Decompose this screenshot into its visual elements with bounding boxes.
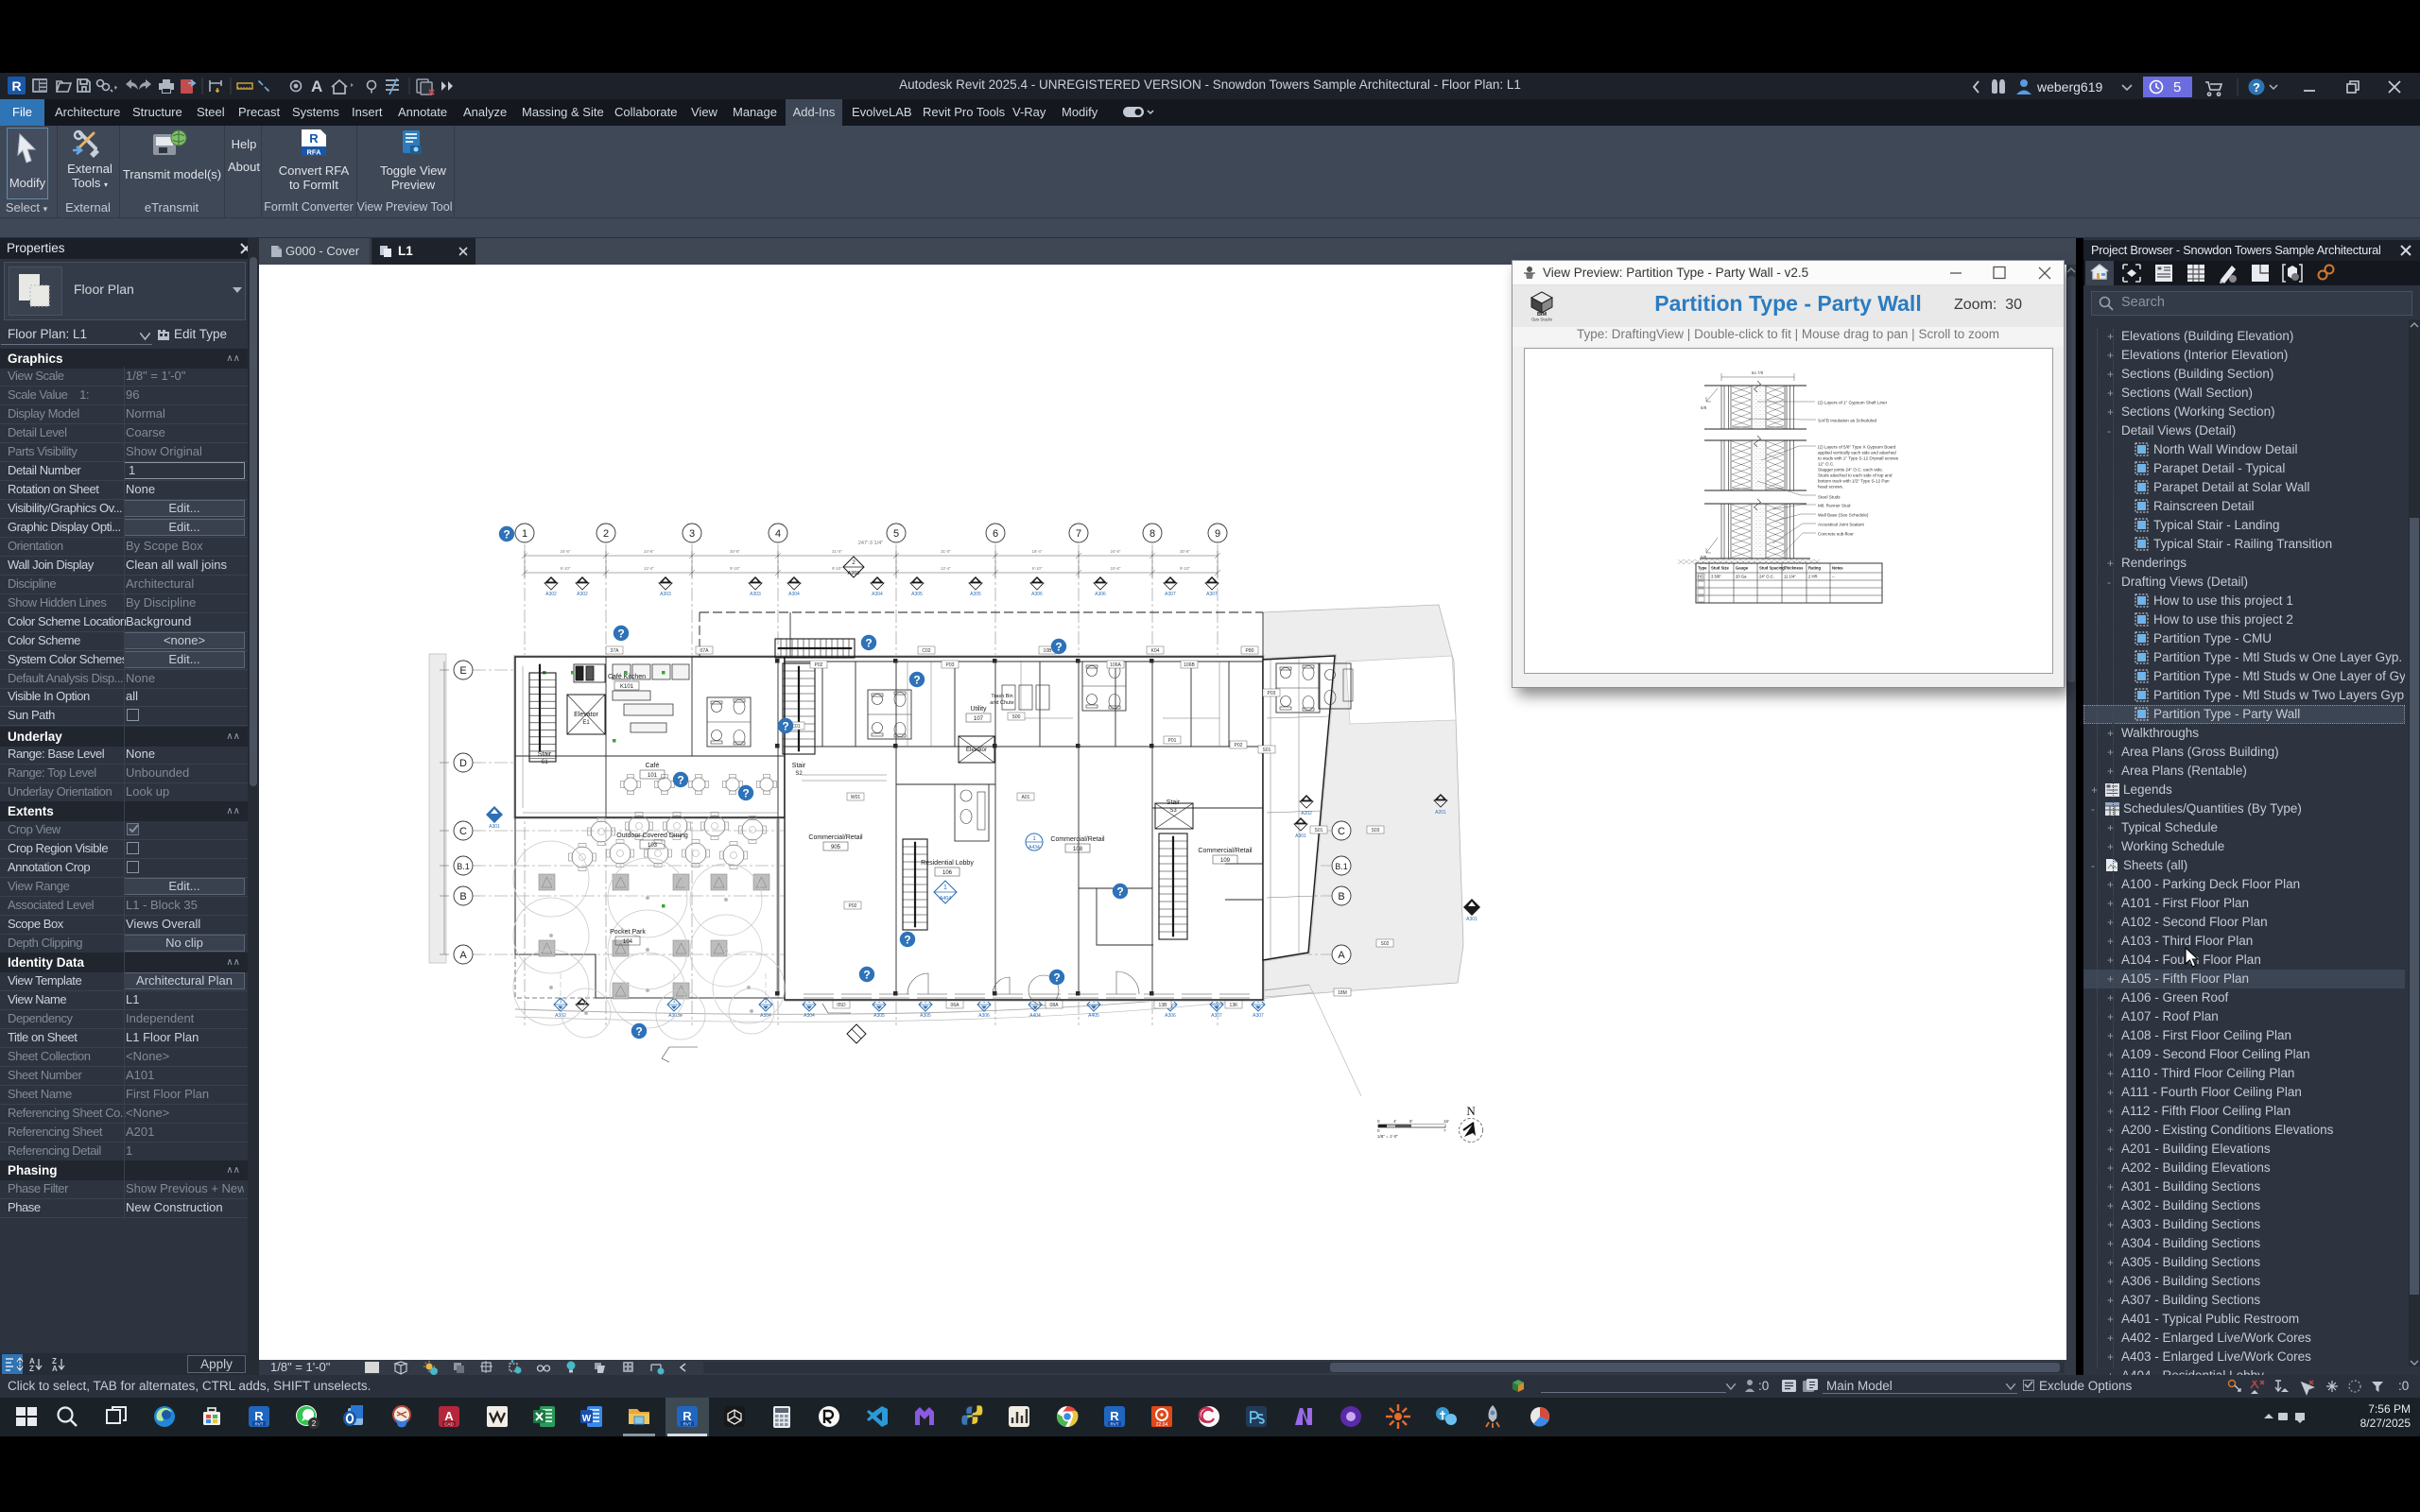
svg-text:D: D	[459, 758, 467, 769]
svg-text:6: 6	[993, 528, 998, 540]
svg-text:applied vertically each side a: applied vertically each side and attache…	[1818, 451, 1896, 455]
svg-text:24" O.C.: 24" O.C.	[1759, 575, 1774, 579]
svg-text:RFA: RFA	[307, 148, 322, 157]
svg-text:A307: A307	[1253, 1013, 1264, 1019]
svg-text:Stagger joints 24" O.C. each s: Stagger joints 24" O.C. each side.	[1818, 468, 1883, 472]
svg-text:9'-10": 9'-10"	[1180, 566, 1190, 571]
svg-text:A307: A307	[1206, 592, 1218, 597]
svg-text:Studs attached to each side of: Studs attached to each side of top and	[1818, 473, 1893, 478]
svg-text:Residential Lobby: Residential Lobby	[921, 860, 974, 867]
svg-text:A: A	[459, 950, 467, 961]
svg-text:12'-4": 12'-4"	[644, 566, 654, 571]
svg-text:A: A	[1338, 950, 1345, 961]
svg-text:(2) Layers of 5/8" Type X Gyps: (2) Layers of 5/8" Type X Gypsum Board	[1818, 445, 1896, 450]
svg-text:1/8" = 1'-0": 1/8" = 1'-0"	[1377, 1134, 1398, 1139]
svg-text:A307: A307	[1211, 1013, 1222, 1019]
svg-text:5: 5	[2173, 79, 2181, 95]
svg-text:Concrete sub-floor: Concrete sub-floor	[1818, 532, 1854, 537]
svg-text:CAD: CAD	[444, 1421, 454, 1426]
svg-text:12" O.C.: 12" O.C.	[1818, 462, 1834, 467]
svg-text:Type: Type	[1698, 566, 1707, 571]
svg-text:Stair: Stair	[538, 751, 552, 758]
svg-text:A304: A304	[760, 1013, 771, 1019]
svg-text:9'-10": 9'-10"	[561, 566, 571, 571]
svg-text:--: --	[1832, 575, 1835, 579]
svg-text:A301: A301	[1295, 833, 1306, 839]
svg-text:S03: S03	[1372, 828, 1380, 833]
svg-text:A01: A01	[1022, 795, 1030, 800]
svg-text:8: 8	[1149, 528, 1155, 540]
svg-text:A301: A301	[1466, 917, 1478, 922]
svg-text:B: B	[459, 891, 466, 902]
svg-text:P02: P02	[849, 903, 857, 909]
svg-text:C: C	[459, 826, 467, 837]
svg-text:08A: 08A	[1050, 1003, 1060, 1008]
svg-text:B.1: B.1	[1335, 862, 1348, 871]
svg-text:W01: W01	[851, 795, 861, 800]
svg-text:Mtl. Runner Stud: Mtl. Runner Stud	[1818, 504, 1851, 508]
svg-text:1: 1	[672, 999, 675, 1005]
svg-text:C: C	[1338, 826, 1345, 837]
svg-text:P80: P80	[1246, 648, 1254, 654]
svg-text:A: A	[52, 1365, 58, 1372]
svg-text:Trash Bin: Trash Bin	[991, 694, 1012, 699]
svg-text:5a 7/8: 5a 7/8	[1752, 370, 1764, 375]
svg-text:A305: A305	[873, 1013, 885, 1019]
svg-text:20 Ga: 20 Ga	[1736, 575, 1747, 579]
svg-text:9: 9	[1215, 528, 1220, 540]
svg-text:10B: 10B	[1044, 648, 1053, 654]
svg-text:Commercial/Retail: Commercial/Retail	[808, 834, 863, 841]
svg-text:A305: A305	[970, 592, 981, 597]
svg-text:(2) Layers of 1" Gypsum Shaft: (2) Layers of 1" Gypsum Shaft Liner	[1818, 401, 1888, 405]
svg-text:S3: S3	[1169, 808, 1177, 814]
svg-text:24'-6": 24'-6"	[644, 549, 654, 554]
svg-text:0: 0	[1377, 1119, 1380, 1124]
svg-text:37A: 37A	[611, 648, 620, 654]
svg-text:4': 4'	[1393, 1119, 1397, 1124]
svg-text:S1: S1	[541, 760, 548, 765]
svg-text:Gauge: Gauge	[1736, 566, 1749, 571]
svg-text:106B: 106B	[1184, 662, 1195, 668]
svg-text:30'-8": 30'-8"	[1180, 549, 1190, 554]
svg-text:Utility: Utility	[970, 706, 987, 713]
svg-text:B: B	[1338, 891, 1344, 902]
svg-text:Steel Studs: Steel Studs	[1818, 495, 1841, 500]
svg-text:905: 905	[831, 845, 841, 850]
svg-text:A305: A305	[920, 1013, 931, 1019]
svg-text:8': 8'	[1409, 1119, 1413, 1124]
svg-text:RVT: RVT	[255, 1421, 264, 1426]
svg-text:Stair: Stair	[1167, 799, 1181, 806]
svg-text:A306: A306	[1095, 592, 1106, 597]
svg-text:HO: HO	[1698, 575, 1704, 579]
svg-text:S01: S01	[1263, 747, 1271, 753]
svg-text:A208: A208	[848, 571, 860, 576]
svg-text:B.1: B.1	[457, 862, 470, 871]
svg-text:P03: P03	[1268, 691, 1276, 696]
svg-text:SAFB Insulation as Scheduled: SAFB Insulation as Scheduled	[1818, 419, 1876, 423]
svg-text:107: 107	[974, 716, 984, 722]
svg-text:Stud Spacing: Stud Spacing	[1759, 566, 1785, 571]
svg-text:A306: A306	[1165, 1013, 1176, 1019]
svg-text:2: 2	[603, 528, 609, 540]
svg-text:15'-6": 15'-6"	[1111, 566, 1121, 571]
svg-text:108: 108	[1073, 847, 1083, 852]
svg-text:Notes: Notes	[1832, 566, 1843, 571]
svg-text:31'-0": 31'-0"	[832, 549, 842, 554]
svg-text:C02: C02	[922, 648, 930, 654]
svg-text:11 1/4": 11 1/4"	[1784, 575, 1796, 579]
svg-text:2: 2	[312, 1419, 317, 1428]
svg-text:1: 1	[522, 528, 527, 540]
svg-text:Wall Base (See Schedule): Wall Base (See Schedule)	[1818, 513, 1869, 518]
svg-text:A201: A201	[1435, 810, 1446, 816]
svg-text:P01: P01	[1168, 738, 1177, 744]
svg-text:Outdoor Covered Dining: Outdoor Covered Dining	[616, 833, 688, 839]
svg-text:3 5/8": 3 5/8"	[1711, 575, 1721, 579]
svg-text:E1: E1	[582, 720, 590, 726]
svg-text:109: 109	[1220, 858, 1231, 864]
svg-text:P03: P03	[946, 662, 955, 668]
svg-text:5/8: 5/8	[1701, 405, 1707, 410]
svg-text:P02: P02	[1235, 743, 1243, 748]
svg-text:A303: A303	[660, 592, 671, 597]
svg-text:Commercial/Retail: Commercial/Retail	[1198, 848, 1253, 854]
svg-text:Thickness: Thickness	[1784, 566, 1804, 571]
svg-text:bottom track with 1/2" Type S-: bottom track with 1/2" Type S-12 Pan	[1818, 479, 1890, 484]
svg-text:K101: K101	[620, 684, 634, 690]
svg-text:0: 0	[1377, 1128, 1380, 1133]
svg-text:?: ?	[2253, 80, 2260, 94]
svg-text:07A: 07A	[700, 648, 710, 654]
svg-text:Elevator: Elevator	[574, 712, 598, 718]
svg-text:Rating: Rating	[1808, 566, 1821, 571]
svg-text:104: 104	[623, 939, 633, 945]
svg-text:A303: A303	[750, 592, 761, 597]
svg-text:Acoustical Joint Sealant: Acoustical Joint Sealant	[1818, 523, 1864, 527]
svg-text:18M: 18M	[1338, 990, 1347, 996]
svg-text:W: W	[582, 1414, 592, 1424]
svg-text:31'-0": 31'-0"	[941, 549, 951, 554]
svg-text:A306: A306	[978, 1013, 990, 1019]
svg-text:RVT: RVT	[1111, 1421, 1119, 1426]
svg-text:E: E	[459, 665, 466, 677]
svg-text:K04: K04	[1151, 648, 1160, 654]
svg-text:7: 7	[1076, 528, 1081, 540]
svg-text:RVT: RVT	[683, 1421, 692, 1426]
svg-text:13K: 13K	[1230, 1003, 1239, 1008]
svg-text:A304: A304	[788, 592, 800, 597]
svg-text:Café Kitchen: Café Kitchen	[608, 674, 646, 680]
svg-text:A434: A434	[1028, 845, 1040, 850]
svg-text:1: 1	[764, 999, 767, 1005]
svg-text:head screws.: head screws.	[1818, 485, 1843, 490]
svg-text:and Chute: and Chute	[990, 700, 1013, 706]
svg-text:5/8: 5/8	[1701, 555, 1707, 559]
svg-text:A302: A302	[555, 1013, 566, 1019]
svg-text:S02: S02	[1381, 941, 1390, 947]
svg-text:247'-3 1/4": 247'-3 1/4"	[858, 541, 883, 546]
svg-text:A202: A202	[1301, 811, 1312, 816]
svg-text:24'-6": 24'-6"	[1111, 549, 1121, 554]
svg-text:A305: A305	[911, 592, 923, 597]
svg-text:A307: A307	[1165, 592, 1176, 597]
svg-text:05D: 05D	[837, 1003, 846, 1008]
svg-text:24'-6": 24'-6"	[561, 549, 571, 554]
svg-text:A303: A303	[668, 1013, 680, 1019]
svg-text:101: 101	[648, 773, 658, 779]
svg-text:103: 103	[648, 843, 658, 849]
svg-text:A404: A404	[940, 896, 952, 902]
svg-text:Elevator: Elevator	[966, 747, 987, 753]
svg-text:A306: A306	[1031, 592, 1043, 597]
svg-text:9'-10": 9'-10"	[832, 566, 842, 571]
svg-text:S2: S2	[795, 771, 803, 777]
svg-text:13B: 13B	[1159, 1003, 1168, 1008]
svg-text:22.04: 22.04	[1156, 1422, 1168, 1428]
svg-text:2 HR: 2 HR	[1808, 575, 1818, 579]
svg-text:A302: A302	[577, 592, 588, 597]
svg-text:A304: A304	[804, 1013, 815, 1019]
svg-text:12'-4": 12'-4"	[941, 566, 951, 571]
svg-text:Z: Z	[29, 1365, 34, 1372]
svg-text:to studs with 1" Type S-12 Dry: to studs with 1" Type S-12 Drywall screw…	[1818, 456, 1899, 461]
svg-text:4: 4	[775, 528, 781, 540]
svg-text:N: N	[1466, 1104, 1476, 1118]
svg-text:weberg619: weberg619	[2036, 79, 2102, 94]
svg-text:1: 1	[559, 999, 562, 1005]
svg-text:9'-10": 9'-10"	[1032, 566, 1043, 571]
svg-text:2: 2	[852, 559, 856, 566]
svg-text:R: R	[309, 131, 319, 146]
svg-text:06A: 06A	[951, 1003, 960, 1008]
svg-text:Stair: Stair	[792, 763, 806, 769]
svg-text:P02: P02	[815, 662, 823, 668]
svg-text:1: 1	[943, 885, 947, 891]
svg-text:18'-4": 18'-4"	[1032, 549, 1043, 554]
svg-text:A404: A404	[1029, 1013, 1041, 1019]
svg-text:S01: S01	[1315, 828, 1323, 833]
svg-text:3: 3	[689, 528, 695, 540]
svg-text:Pocket Park: Pocket Park	[610, 929, 646, 936]
svg-text:30'-8": 30'-8"	[730, 549, 740, 554]
svg-text:A304: A304	[872, 592, 883, 597]
svg-text:16': 16'	[1443, 1119, 1449, 1124]
svg-text:Café: Café	[646, 763, 660, 769]
svg-text:Commercial/Retail: Commercial/Retail	[1050, 836, 1105, 843]
svg-text:A405: A405	[1088, 1013, 1099, 1019]
svg-text:Stud Size: Stud Size	[1711, 566, 1730, 571]
svg-text:106A: 106A	[1110, 662, 1121, 668]
svg-text:Ops Studio: Ops Studio	[1531, 318, 1553, 322]
svg-text:5: 5	[893, 528, 899, 540]
svg-text:S00: S00	[1012, 714, 1021, 720]
svg-text:A301: A301	[489, 824, 500, 830]
svg-text:A302: A302	[545, 592, 557, 597]
svg-text:?: ?	[1443, 1128, 1446, 1133]
svg-text:106: 106	[942, 870, 953, 876]
svg-text:9'-10": 9'-10"	[730, 566, 740, 571]
